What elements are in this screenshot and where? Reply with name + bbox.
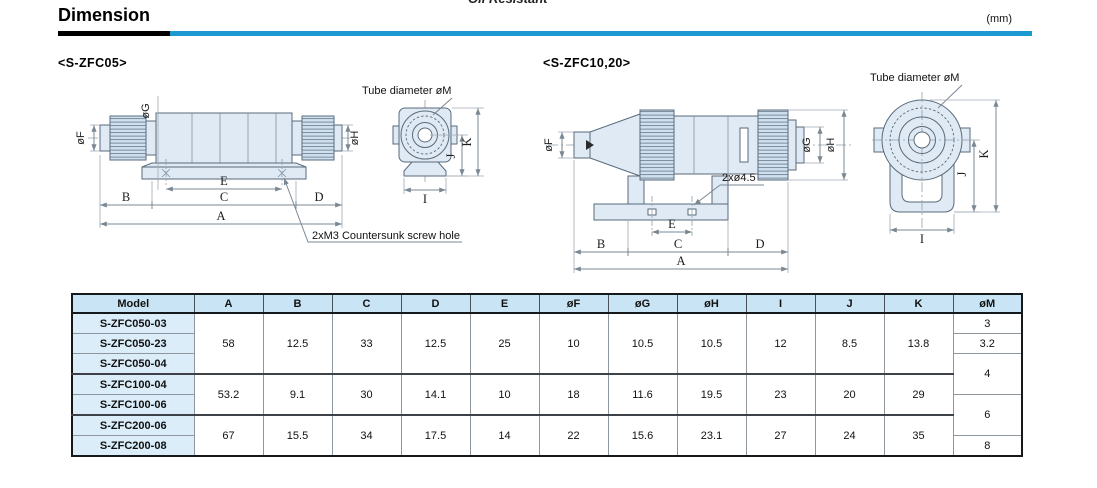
- technical-drawings: øF øG øH E B C D A 2xM3 Countersunk scre…: [0, 48, 1097, 293]
- cell-b: 12.5: [263, 313, 332, 374]
- dim-label-j: J: [955, 171, 969, 176]
- cell-j: 8.5: [815, 313, 884, 374]
- dim-label-i: I: [920, 232, 924, 246]
- cropped-header-text: Oil Resistant: [468, 0, 588, 7]
- cell-e: 25: [470, 313, 539, 374]
- dim-label-c: C: [220, 190, 228, 204]
- cell-k: 29: [884, 374, 953, 415]
- cell-m: 3.2: [953, 334, 1022, 354]
- cell-c: 30: [332, 374, 401, 415]
- zfc05-end-view: Tube diameter øM I J K: [362, 85, 484, 206]
- dim-label-d: D: [755, 237, 764, 251]
- dim-label-a: A: [216, 209, 225, 223]
- cell-m: 3: [953, 313, 1022, 334]
- cell-f: 22: [539, 415, 608, 456]
- countersunk-note: 2xM3 Countersunk screw hole: [312, 230, 460, 242]
- cell-j: 20: [815, 374, 884, 415]
- dim-label-a: A: [676, 254, 685, 268]
- cell-e: 10: [470, 374, 539, 415]
- dim-label-f: øF: [543, 138, 555, 152]
- cell-g: 11.6: [608, 374, 677, 415]
- section-rule-black: [58, 31, 170, 36]
- col-header-k: K: [884, 294, 953, 313]
- cell-model: S-ZFC200-06: [72, 415, 194, 436]
- col-header-h: øH: [677, 294, 746, 313]
- cell-j: 24: [815, 415, 884, 456]
- cell-model: S-ZFC050-03: [72, 313, 194, 334]
- cell-m: 8: [953, 436, 1022, 457]
- dim-label-b: B: [122, 190, 130, 204]
- dim-label-e: E: [220, 174, 228, 188]
- tube-caption-left: Tube diameter øM: [362, 85, 451, 97]
- cell-model: S-ZFC050-04: [72, 354, 194, 375]
- dim-label-c: C: [674, 237, 682, 251]
- cell-c: 34: [332, 415, 401, 456]
- dim-label-i: I: [423, 192, 427, 206]
- table-row: S-ZFC100-04 53.2 9.1 30 14.1 10 18 11.6 …: [72, 374, 1022, 395]
- col-header-b: B: [263, 294, 332, 313]
- dim-label-f: øF: [75, 131, 87, 145]
- tube-caption-right: Tube diameter øM: [870, 72, 959, 84]
- col-header-model: Model: [72, 294, 194, 313]
- zfc10-20-end-view: Tube diameter øM I J K: [870, 72, 1000, 246]
- cell-a: 53.2: [194, 374, 263, 415]
- col-header-m: øM: [953, 294, 1022, 313]
- cell-h: 23.1: [677, 415, 746, 456]
- catalog-page: Oil Resistant Dimension (mm) <S-ZFC05> <…: [0, 0, 1097, 488]
- cell-b: 9.1: [263, 374, 332, 415]
- table-row: S-ZFC050-03 58 12.5 33 12.5 25 10 10.5 1…: [72, 313, 1022, 334]
- cell-i: 12: [746, 313, 815, 374]
- cell-d: 17.5: [401, 415, 470, 456]
- cell-g: 10.5: [608, 313, 677, 374]
- col-header-g: øG: [608, 294, 677, 313]
- col-header-f: øF: [539, 294, 608, 313]
- cell-model: S-ZFC050-23: [72, 334, 194, 354]
- cell-b: 15.5: [263, 415, 332, 456]
- unit-label: (mm): [912, 13, 1012, 25]
- table-row: S-ZFC200-06 67 15.5 34 17.5 14 22 15.6 2…: [72, 415, 1022, 436]
- dim-label-k: K: [977, 149, 991, 158]
- dim-label-b: B: [597, 237, 605, 251]
- col-header-j: J: [815, 294, 884, 313]
- zfc10-20-side-view: [548, 110, 852, 236]
- col-header-c: C: [332, 294, 401, 313]
- cell-model: S-ZFC200-08: [72, 436, 194, 457]
- dim-label-h: øH: [825, 138, 837, 153]
- cell-model: S-ZFC100-06: [72, 395, 194, 416]
- dim-label-d: D: [314, 190, 323, 204]
- cell-k: 35: [884, 415, 953, 456]
- hole-note: 2xø4.5: [722, 172, 756, 184]
- cell-d: 12.5: [401, 313, 470, 374]
- cell-f: 18: [539, 374, 608, 415]
- col-header-i: I: [746, 294, 815, 313]
- cell-i: 23: [746, 374, 815, 415]
- cell-model: S-ZFC100-04: [72, 374, 194, 395]
- dimension-table: Model A B C D E øF øG øH I J K øM S-ZFC0…: [71, 293, 1023, 457]
- dim-label-g: øG: [140, 103, 152, 118]
- cell-h: 10.5: [677, 313, 746, 374]
- dim-label-j: J: [444, 153, 458, 158]
- dim-label-g: øG: [801, 137, 813, 152]
- cell-k: 13.8: [884, 313, 953, 374]
- section-rule: [58, 31, 1032, 36]
- cell-a: 67: [194, 415, 263, 456]
- dim-label-h: øH: [349, 131, 361, 146]
- cell-e: 14: [470, 415, 539, 456]
- cell-i: 27: [746, 415, 815, 456]
- page-title: Dimension: [58, 5, 150, 26]
- cell-g: 15.6: [608, 415, 677, 456]
- dim-label-e: E: [668, 217, 676, 231]
- cell-f: 10: [539, 313, 608, 374]
- col-header-d: D: [401, 294, 470, 313]
- cell-c: 33: [332, 313, 401, 374]
- col-header-a: A: [194, 294, 263, 313]
- cell-m: 4: [953, 354, 1022, 395]
- col-header-e: E: [470, 294, 539, 313]
- dim-label-k: K: [460, 137, 474, 146]
- cell-a: 58: [194, 313, 263, 374]
- cell-d: 14.1: [401, 374, 470, 415]
- table-header-row: Model A B C D E øF øG øH I J K øM: [72, 294, 1022, 313]
- cell-h: 19.5: [677, 374, 746, 415]
- cell-m: 6: [953, 395, 1022, 436]
